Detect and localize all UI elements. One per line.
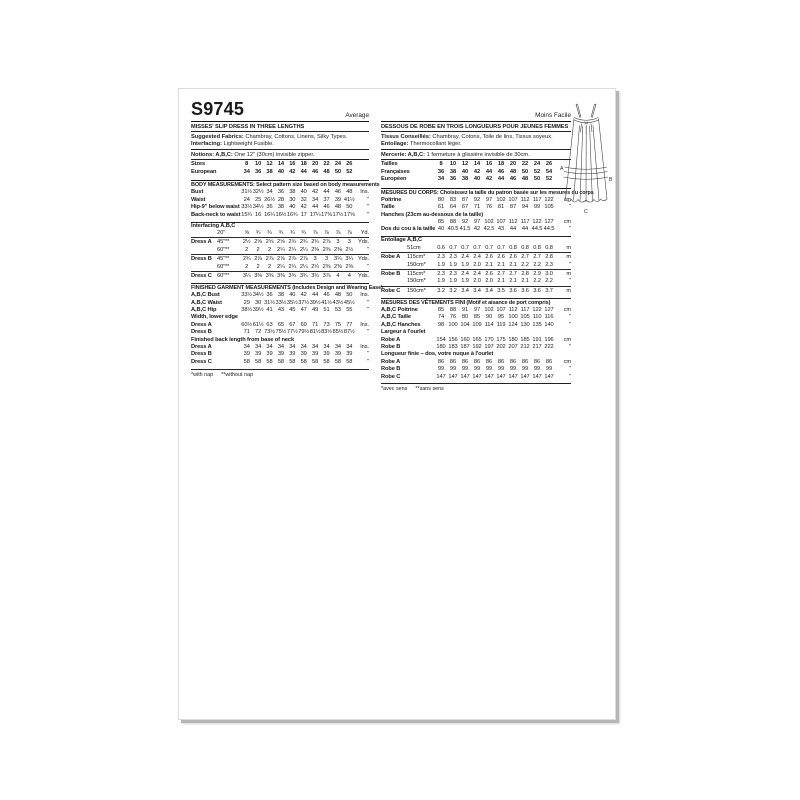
cell-value: 180	[507, 337, 519, 344]
row-sublabel: 45"**	[217, 239, 241, 246]
cell-value: 192	[471, 344, 483, 351]
cell-value: 2.4	[471, 271, 483, 278]
cell-value: 17⅝	[344, 212, 355, 219]
table-row: Back-neck to waist15¾1616¼16½16¾1717¼17⅜…	[191, 212, 369, 219]
cell-value: 207	[507, 344, 519, 351]
yardage-table-fr: 51cm0.60.70.70.70.70.70.80.80.80.8mRobe …	[381, 245, 571, 295]
cell-value: 2.2	[531, 262, 543, 269]
cell-value: 127	[543, 219, 555, 226]
cell-value: 12	[459, 161, 471, 168]
cell-value: 100	[507, 314, 519, 321]
cell-value: 99	[495, 366, 507, 373]
table-row: A,B,C Waist293031½33½35½37½39½41½43½45½"	[191, 300, 369, 307]
cell-value: 85	[435, 219, 447, 226]
cell-unit: Yds.	[355, 239, 369, 246]
cell-value: 54	[543, 169, 555, 176]
cell-value: 53	[332, 307, 343, 314]
row-sublabel: 60"**	[217, 247, 241, 254]
cell-value: 3	[344, 239, 355, 246]
cell-value: 33½	[275, 300, 286, 307]
cell-value: 122	[543, 197, 555, 204]
cell-value: 31½	[241, 189, 252, 196]
cell-value: 41.5	[459, 226, 471, 233]
cell-value: 1.9	[435, 278, 447, 285]
cell-value: 222	[543, 344, 555, 351]
cell-value: 147	[519, 374, 531, 381]
cell-value: 99	[459, 366, 471, 373]
screenshot-background: { "page": { "code": "S9745" }, "english"…	[0, 0, 800, 800]
cell-value: 114	[483, 322, 495, 329]
cell-value: 3¾	[298, 273, 309, 280]
cell-value: 77	[344, 322, 355, 329]
cell-unit: m	[555, 245, 571, 252]
cell-value: 2.6	[483, 254, 495, 261]
cell-value: 42	[483, 176, 495, 183]
cell-value: 109	[471, 322, 483, 329]
table-group-label: Longueur finie – dos, votre nuque à l'ou…	[381, 351, 571, 358]
cell-value: 3¾	[309, 273, 320, 280]
cell-value: 116	[543, 314, 555, 321]
cell-value: 3	[321, 256, 332, 263]
cell-value: 2¼	[275, 247, 286, 254]
cell-value: 107	[495, 219, 507, 226]
cell-value: 107	[495, 307, 507, 314]
table-row: Dos du cou à la taille4040.541.54242.543…	[381, 226, 571, 233]
cell-value: 46	[495, 169, 507, 176]
cell-value: 2.4	[459, 254, 471, 261]
interfacing-text-en: Lightweight Fusible.	[222, 141, 274, 147]
cell-value: 58	[264, 359, 275, 366]
cell-value: 38	[287, 189, 298, 196]
cell-value: 86	[483, 359, 495, 366]
cell-value: 2¾	[287, 239, 298, 246]
cell-value: 2⅜	[344, 264, 355, 271]
row-sublabel: 115cm*	[407, 271, 435, 278]
cell-value: 170	[483, 337, 495, 344]
pattern-envelope-back: S9745 Average MISSES' SLIP DRESS IN THRE…	[178, 88, 616, 720]
table-group-label: Width, lower edge	[191, 314, 369, 321]
row-sublabel: 150cm*	[407, 278, 435, 285]
cell-value: 2.9	[531, 271, 543, 278]
cell-value: 40	[287, 292, 298, 299]
cell-value: 1.9	[447, 278, 459, 285]
cell-value: 154	[435, 337, 447, 344]
interfacing-header-en: Interfacing A,B,C	[191, 223, 369, 230]
cell-value: 85½	[332, 329, 343, 336]
cell-value: 2	[241, 264, 252, 271]
cell-value: 75	[332, 322, 343, 329]
cell-value: 75½	[275, 329, 286, 336]
cell-value: 15¾	[241, 212, 252, 219]
body-measurements-table-en: Bust31½32½3436384042444648Ins.Waist24252…	[191, 189, 369, 219]
cell-value: 71	[241, 329, 252, 336]
cell-value: 71	[309, 322, 320, 329]
table-row: A,B,C Bust33½34½3638404244464850Ins.	[191, 292, 369, 299]
cell-value: 2.3	[435, 271, 447, 278]
cell-value: 2.1	[507, 262, 519, 269]
body-measurements-table-fr: Poitrine8083879297102107112117122cmTaill…	[381, 197, 571, 234]
cell-value: 61	[435, 204, 447, 211]
cell-value: 2⅜	[321, 247, 332, 254]
row-label: Dress C	[191, 273, 217, 280]
cell-value: 73½	[264, 329, 275, 336]
cell-value: 0.8	[543, 245, 555, 252]
row-label: Robe B	[381, 344, 435, 351]
cell-value: 40	[459, 169, 471, 176]
cell-value: 107	[507, 197, 519, 204]
cell-value: 2.7	[519, 254, 531, 261]
row-sublabel: 150cm*	[407, 288, 435, 295]
cell-value: 39	[252, 351, 263, 358]
garment-title-fr: DESSOUS DE ROBE EN TROIS LONGUEURS POUR …	[381, 122, 571, 132]
cell-value: 3.0	[543, 271, 555, 278]
cell-value: 26	[344, 161, 355, 168]
cell-value: 97	[483, 197, 495, 204]
finished-measurements-table-fr: A,B,C Poitrine85889197102107112117122127…	[381, 307, 571, 381]
footnote-with-nap: *with nap	[191, 372, 213, 378]
cell-value: 191	[531, 337, 543, 344]
french-column: Moins Facile DESSOUS DE ROBE EN TROIS LO…	[381, 97, 571, 392]
sizes-table-en: Sizes8101214161820222426European34363840…	[191, 160, 369, 178]
cell-value: 34	[435, 176, 447, 183]
cell-value: 147	[471, 374, 483, 381]
table-row: Dress B39393939393939393939"	[191, 351, 369, 358]
cell-unit: "	[555, 366, 571, 373]
cell-value: 99	[543, 366, 555, 373]
cell-value: 180	[435, 344, 447, 351]
cell-value: 0.7	[447, 245, 459, 252]
table-row: Robe C147147147147147147147147147147"	[381, 374, 571, 381]
row-label: A,B,C Bust	[191, 292, 241, 299]
cell-value: 2	[264, 264, 275, 271]
cell-value: 2⅞	[298, 256, 309, 263]
cell-value: 28	[275, 197, 286, 204]
cell-value: 40	[471, 176, 483, 183]
cell-value: 147	[483, 374, 495, 381]
table-row: Robe B180183187192197202207212217222"	[381, 344, 571, 351]
cell-value: 34	[332, 344, 343, 351]
cell-unit: "	[555, 278, 571, 285]
cell-value: 135	[531, 322, 543, 329]
cell-value: 17	[298, 212, 309, 219]
cell-value: 34	[241, 344, 252, 351]
cell-value: ¾	[264, 230, 275, 237]
cell-value: 34	[241, 169, 252, 176]
cell-value: 102	[495, 197, 507, 204]
table-row: Dress A60½61½6365676971737577Ins.	[191, 322, 369, 329]
cell-value: 2.6	[483, 271, 495, 278]
cell-unit: "	[355, 247, 369, 254]
cell-value: 86	[471, 359, 483, 366]
cell-value: ⅞	[344, 230, 355, 237]
cell-value: 2.7	[495, 271, 507, 278]
cell-value: 20	[507, 161, 519, 168]
cell-value: 100	[447, 322, 459, 329]
cell-value: 3⅜	[275, 273, 286, 280]
cell-value: ⅞	[309, 230, 320, 237]
cell-value: 10	[252, 161, 263, 168]
cell-value: 165	[471, 337, 483, 344]
cell-value: 0.6	[435, 245, 447, 252]
cell-value: 42	[471, 226, 483, 233]
cell-value: 2¼	[287, 247, 298, 254]
cell-value: 36	[264, 204, 275, 211]
cell-value: 2.3	[435, 254, 447, 261]
cell-value: 2¼	[298, 264, 309, 271]
table-row: 85889297102107112117122127cm	[381, 219, 571, 226]
cell-value: 202	[495, 344, 507, 351]
cell-unit: "	[355, 204, 369, 211]
cell-value: 212	[519, 344, 531, 351]
cell-value: 3.6	[519, 288, 531, 295]
cell-unit: m	[555, 271, 571, 278]
french-header: Moins Facile	[381, 97, 571, 122]
cell-value: 2.1	[519, 278, 531, 285]
cell-value: 39	[298, 351, 309, 358]
cell-value: 52	[344, 169, 355, 176]
cell-value: 4	[344, 273, 355, 280]
table-row: Dress B45"**2¾2⅞2⅞2⅞2⅞2⅞333¼3¼Yds.	[191, 254, 369, 263]
row-label: Sizes	[191, 161, 241, 168]
cell-value: 86	[543, 359, 555, 366]
cell-value: 147	[435, 374, 447, 381]
row-label: Dress A	[191, 344, 241, 351]
cell-value: 2.1	[507, 278, 519, 285]
cell-value: 52	[543, 176, 555, 183]
cell-value: 33½	[241, 204, 252, 211]
cell-unit: Yd.	[355, 230, 369, 237]
cell-value: 72	[252, 329, 263, 336]
cell-value: 2¼	[287, 264, 298, 271]
cell-value: 91	[459, 307, 471, 314]
fabrics-text-en: Chambray, Cottons, Linens, Silky Types.	[244, 134, 347, 140]
cell-value: 88	[447, 307, 459, 314]
row-label: Poitrine	[381, 197, 435, 204]
finished-measurements-header-fr: MESURES DES VÊTEMENTS FINI (Motif et ais…	[381, 299, 571, 307]
footnote-without-nap: **without nap	[221, 372, 253, 378]
cell-value: 2	[264, 247, 275, 254]
row-label: Robe A	[381, 254, 407, 261]
row-label: Robe A	[381, 337, 435, 344]
cell-value: 39½	[309, 300, 320, 307]
cell-value: 17⅜	[321, 212, 332, 219]
cell-value: 83½	[321, 329, 332, 336]
cell-value: 81	[495, 204, 507, 211]
cell-value: 94	[519, 204, 531, 211]
row-label: Tailles	[381, 161, 435, 168]
notions-label-en: Notions: A,B,C:	[191, 152, 233, 158]
cell-value: 43	[495, 226, 507, 233]
interfacing-header-fr: Entoilage A,B,C	[381, 237, 571, 244]
table-row: Dress A34343434343434343434Ins.	[191, 344, 369, 351]
cell-value: 42.5	[483, 226, 495, 233]
cell-value: 99	[471, 366, 483, 373]
cell-value: 50	[519, 169, 531, 176]
cell-value: 30	[252, 300, 263, 307]
row-label: Robe C	[381, 374, 435, 381]
table-row: Bust31½32½3436384042444648Ins.	[191, 189, 369, 196]
cell-value: 41½	[344, 197, 355, 204]
cell-value: 2.7	[531, 254, 543, 261]
cell-unit: m	[555, 254, 571, 261]
cell-value: 3	[309, 256, 320, 263]
cell-value: 77½	[287, 329, 298, 336]
cell-value: 112	[507, 307, 519, 314]
cell-value: 42	[471, 169, 483, 176]
cell-value: 2.7	[507, 271, 519, 278]
table-row: Dress C58585858585858585858"	[191, 359, 369, 366]
cell-value: 18	[298, 161, 309, 168]
cell-value: 50	[344, 204, 355, 211]
cell-value: 39	[332, 351, 343, 358]
row-label: Dress C	[191, 359, 241, 366]
cell-value: 2⅞	[264, 256, 275, 263]
table-row: Taille616467717681879499105"	[381, 204, 571, 211]
table-row: Européen34363840424446485052	[381, 176, 571, 183]
cell-value: ⅞	[332, 230, 343, 237]
cell-value: 3.2	[435, 288, 447, 295]
cell-value: 3¾	[287, 273, 298, 280]
row-sublabel: 45"**	[217, 256, 241, 263]
row-label: Dress B	[191, 351, 241, 358]
cell-value: 38	[459, 176, 471, 183]
cell-value: 46	[332, 189, 343, 196]
cell-value: 29	[241, 300, 252, 307]
cell-value: 31½	[264, 300, 275, 307]
cell-value: 67	[287, 322, 298, 329]
cell-value: 2.0	[483, 278, 495, 285]
cell-value: 102	[483, 219, 495, 226]
cell-value: 2⅜	[332, 264, 343, 271]
cell-value: 2⅞	[321, 239, 332, 246]
cell-value: 2.8	[543, 254, 555, 261]
cell-value: 99	[507, 366, 519, 373]
cell-value: 48	[332, 204, 343, 211]
cell-value: 87½	[344, 329, 355, 336]
cell-value: 2⅝	[264, 239, 275, 246]
cell-value: 3¼	[241, 273, 252, 280]
table-row: A,B,C Hanches981001041091141191241301351…	[381, 322, 571, 329]
cell-value: 2.2	[519, 262, 531, 269]
cell-value: 69	[298, 322, 309, 329]
cell-unit: "	[555, 322, 571, 329]
cell-value: 2.2	[531, 278, 543, 285]
cell-value: 3⅜	[252, 273, 263, 280]
row-label: Back-neck to waist	[191, 212, 241, 219]
cell-unit: Yds.	[355, 256, 369, 263]
cell-unit: "	[355, 197, 369, 204]
cell-value: 0.7	[471, 245, 483, 252]
cell-value: ¾	[298, 230, 309, 237]
cell-value: 55	[344, 307, 355, 314]
cell-value: 2¼	[309, 264, 320, 271]
cell-value: 36	[275, 189, 286, 196]
cell-value: 83	[447, 197, 459, 204]
cell-value: 3¼	[344, 256, 355, 263]
cell-value: ⅞	[321, 230, 332, 237]
cell-value: 22	[321, 161, 332, 168]
table-row: Robe A115cm*2.32.32.42.42.62.62.62.72.72…	[381, 252, 571, 261]
cell-value: 92	[459, 219, 471, 226]
cell-value: 160	[459, 337, 471, 344]
footnote-fr: *avec sens**sans sens	[381, 383, 571, 392]
cell-value: 51	[321, 307, 332, 314]
table-row: Françaises36384042444648505254	[381, 169, 571, 176]
cell-unit: cm	[555, 307, 571, 314]
row-label: Dos du cou à la taille	[381, 226, 435, 233]
cell-value: 40	[287, 204, 298, 211]
cell-value: 3	[332, 239, 343, 246]
cell-value: 35½	[287, 300, 298, 307]
cell-value: 2⅝	[275, 239, 286, 246]
cell-value: 86	[519, 359, 531, 366]
cell-value: 185	[519, 337, 531, 344]
cell-value: 90	[483, 314, 495, 321]
cell-value: 85	[435, 307, 447, 314]
cell-unit: "	[355, 264, 369, 271]
table-row: Robe A154156160165170175180185191196cm	[381, 337, 571, 344]
cell-value: 58	[321, 359, 332, 366]
cell-value: 20	[309, 161, 320, 168]
cell-value: 39	[287, 351, 298, 358]
cell-value: 36	[447, 176, 459, 183]
cell-value: 73	[321, 322, 332, 329]
cell-value: 2¼	[275, 264, 286, 271]
cell-value: 44	[483, 169, 495, 176]
cell-value: 52	[531, 169, 543, 176]
cell-value: 34	[309, 344, 320, 351]
fabrics-label-fr: Tissus Conseillés:	[381, 134, 431, 140]
cell-value: 105	[543, 204, 555, 211]
cell-value: 39	[332, 197, 343, 204]
cell-value: 147	[531, 374, 543, 381]
finished-measurements-table-en: A,B,C Bust33½34½3638404244464850Ins.A,B,…	[191, 292, 369, 366]
cell-unit: cm	[555, 337, 571, 344]
cell-value: 58	[344, 359, 355, 366]
cell-value: ¾	[275, 230, 286, 237]
cell-value: 0.7	[459, 245, 471, 252]
row-label: A,B,C Poitrine	[381, 307, 435, 314]
cell-value: 119	[495, 322, 507, 329]
cell-value: 187	[459, 344, 471, 351]
cell-value: 2	[252, 264, 263, 271]
garment-title-en: MISSES' SLIP DRESS IN THREE LENGTHS	[191, 122, 369, 132]
cell-value: 48	[507, 169, 519, 176]
cell-value: 112	[507, 219, 519, 226]
table-row: Tailles8101214161820222426	[381, 161, 571, 168]
cell-value: 97	[471, 219, 483, 226]
row-label: A,B,C Taille	[381, 314, 435, 321]
cell-value: 14	[275, 161, 286, 168]
table-row: Sizes8101214161820222426	[191, 161, 369, 168]
cell-value: 104	[459, 322, 471, 329]
cell-value: 34½	[252, 204, 263, 211]
row-label: Robe B	[381, 271, 407, 278]
cell-value: 46	[321, 292, 332, 299]
table-row: Waist242526½28303234373941½"	[191, 197, 369, 204]
cell-value: 2.3	[447, 254, 459, 261]
cell-value: ¾	[252, 230, 263, 237]
footnote-en: *with nap**without nap	[191, 369, 369, 378]
cell-value: 2.3	[543, 262, 555, 269]
table-row: Robe C150cm*3.23.23.43.43.43.53.63.63.63…	[381, 286, 571, 295]
cell-value: 2.0	[471, 262, 483, 269]
table-row: Dress C60"**3¼3⅜3⅜3⅜3¾3¾3¾3⅞44Yds.	[191, 271, 369, 280]
cell-value: 60½	[241, 322, 252, 329]
notions-line-en: Notions: A,B,C: One 12" (30cm) invisible…	[191, 150, 369, 160]
cell-value: 39	[264, 351, 275, 358]
cell-value: 99	[435, 366, 447, 373]
